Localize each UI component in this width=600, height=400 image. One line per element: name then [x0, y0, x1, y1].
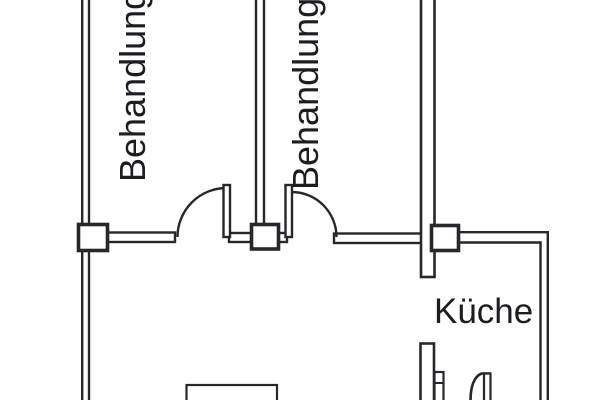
- room-label-treatment-1: Behandlung: [114, 0, 152, 182]
- room-label-treatment-2: Behandlung: [287, 0, 325, 190]
- wall-left-upper: [82, 0, 89, 225]
- wall-corridor-right: [334, 234, 423, 244]
- wall-corridor-left: [107, 233, 175, 243]
- wall-kitchen-left-lower: [421, 344, 435, 400]
- wall-middle: [256, 0, 264, 226]
- door-arc-treatment-2: [292, 192, 337, 237]
- kitchen-fixture-bar: [435, 372, 444, 400]
- door-leaf-treatment-2: [286, 185, 293, 237]
- floor-plan: Behandlung Behandlung Küche: [0, 0, 600, 400]
- wall-junction-box-right: [432, 226, 459, 251]
- kitchen-fixture-post: [484, 374, 491, 400]
- wall-junction-box-left: [79, 225, 108, 251]
- door-leaf-treatment-1: [224, 185, 231, 237]
- furniture-table: [187, 385, 278, 400]
- wall-stub-center-left: [229, 233, 253, 242]
- wall-left-lower: [82, 250, 89, 400]
- door-arc-treatment-1: [178, 188, 227, 237]
- room-label-kitchen: Küche: [434, 294, 533, 330]
- wall-junction-box-center: [252, 225, 279, 250]
